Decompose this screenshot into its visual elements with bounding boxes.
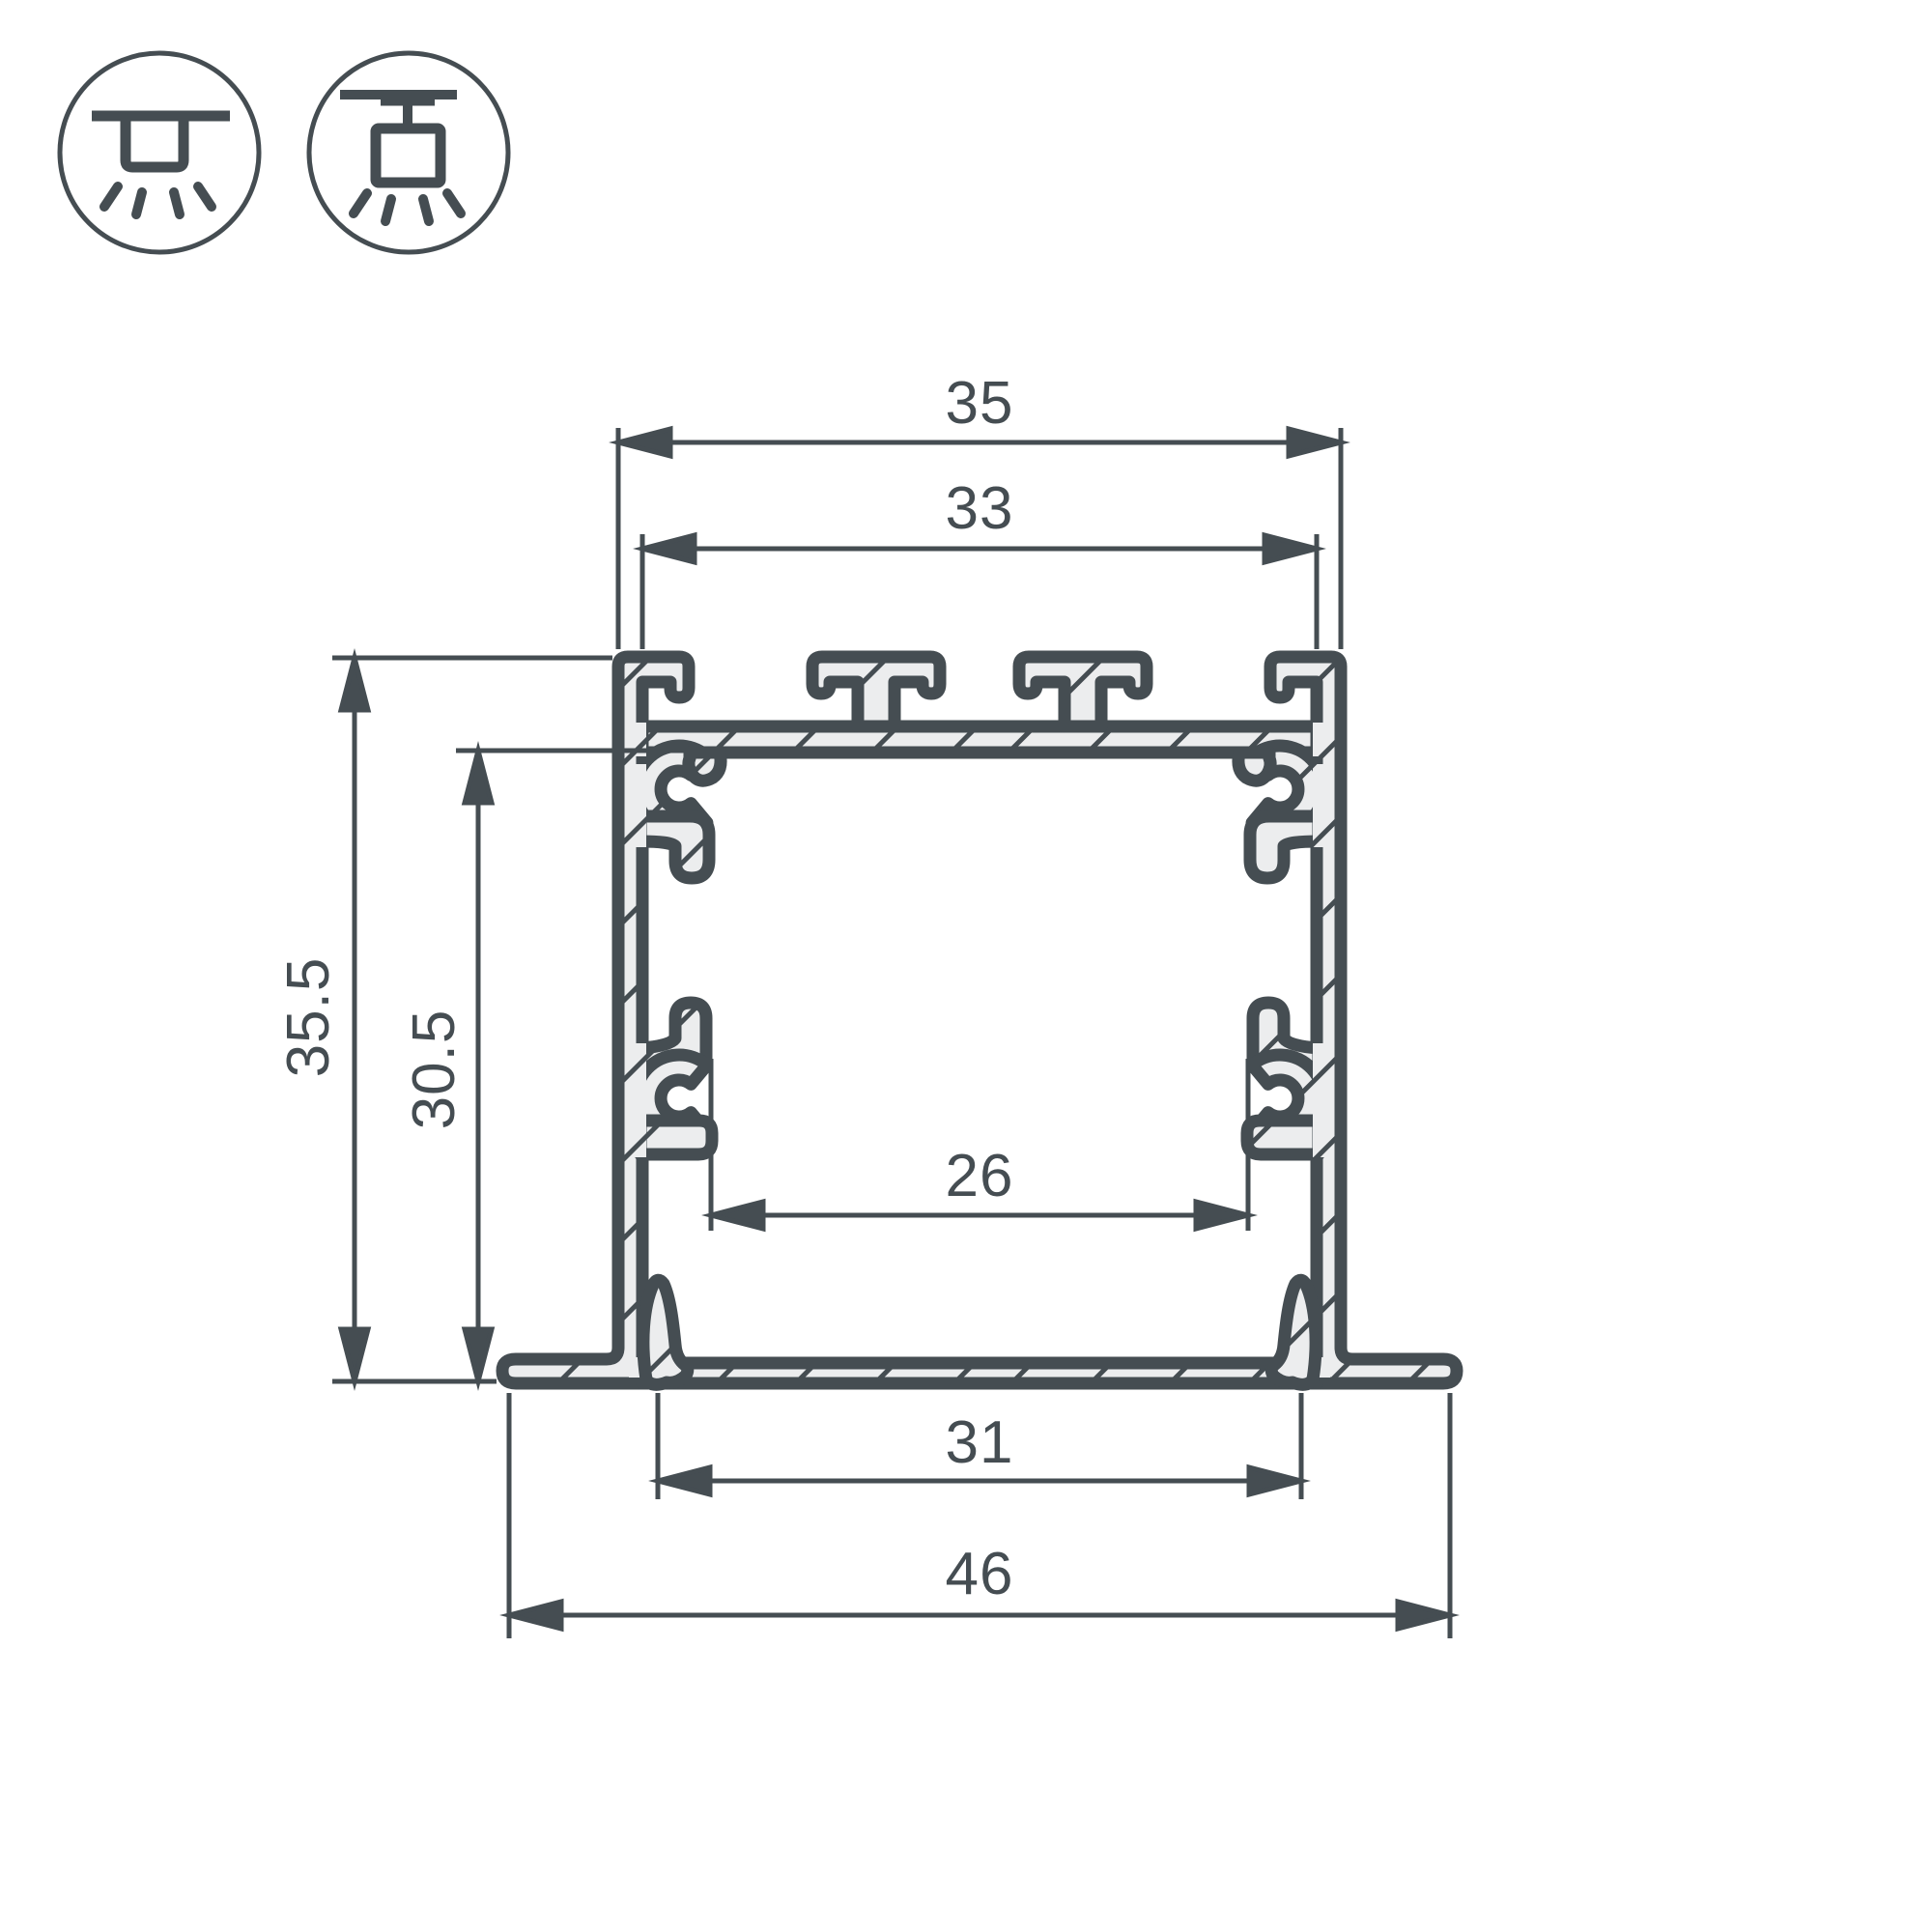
arrowhead: [618, 429, 670, 456]
profile-right-half: [642, 657, 1457, 1384]
arrowhead: [465, 751, 492, 803]
dimension-label-overall-height: 35.5: [275, 957, 342, 1078]
recessed-icon-circle: [60, 53, 259, 252]
arrowhead: [465, 1329, 492, 1381]
arrowhead: [509, 1602, 561, 1629]
dimension-label-flange-width: 46: [946, 1541, 1014, 1607]
dimension-top-opening-width: 33: [642, 475, 1317, 649]
profile-left-half: [502, 657, 1317, 1384]
arrowhead: [1398, 1602, 1450, 1629]
surface-mount-icon: [309, 53, 508, 252]
arrowhead: [341, 658, 368, 710]
arrowhead: [658, 1467, 710, 1494]
surface-icon-light-rays: [354, 193, 461, 221]
dimension-label-inner-width: 26: [946, 1143, 1014, 1209]
dimension-label-inner-height: 30.5: [401, 1009, 468, 1130]
arrowhead: [642, 535, 695, 562]
arrowhead: [1249, 1467, 1301, 1494]
surface-icon-circle: [309, 53, 508, 252]
dimension-recess-width: 31: [658, 1393, 1301, 1499]
dimension-label-top-opening: 33: [946, 475, 1014, 542]
arrowhead: [1264, 535, 1317, 562]
profile-drawing-svg: 35 33 35.5 30.5: [0, 0, 1932, 1932]
surface-icon-housing: [376, 128, 440, 183]
recessed-icon-housing: [126, 114, 184, 167]
arrowhead: [1196, 1202, 1248, 1229]
dimension-label-recess-width: 31: [946, 1409, 1014, 1476]
recessed-icon-light-rays: [104, 186, 212, 214]
technical-drawing-canvas: 35 33 35.5 30.5: [0, 0, 1932, 1932]
arrowhead: [1289, 429, 1341, 456]
arrowhead: [341, 1329, 368, 1381]
arrowhead: [711, 1202, 763, 1229]
recessed-mount-icon: [60, 53, 259, 252]
dimension-inner-width: 26: [711, 1059, 1248, 1231]
dimension-label-outer-width: 35: [946, 370, 1014, 437]
